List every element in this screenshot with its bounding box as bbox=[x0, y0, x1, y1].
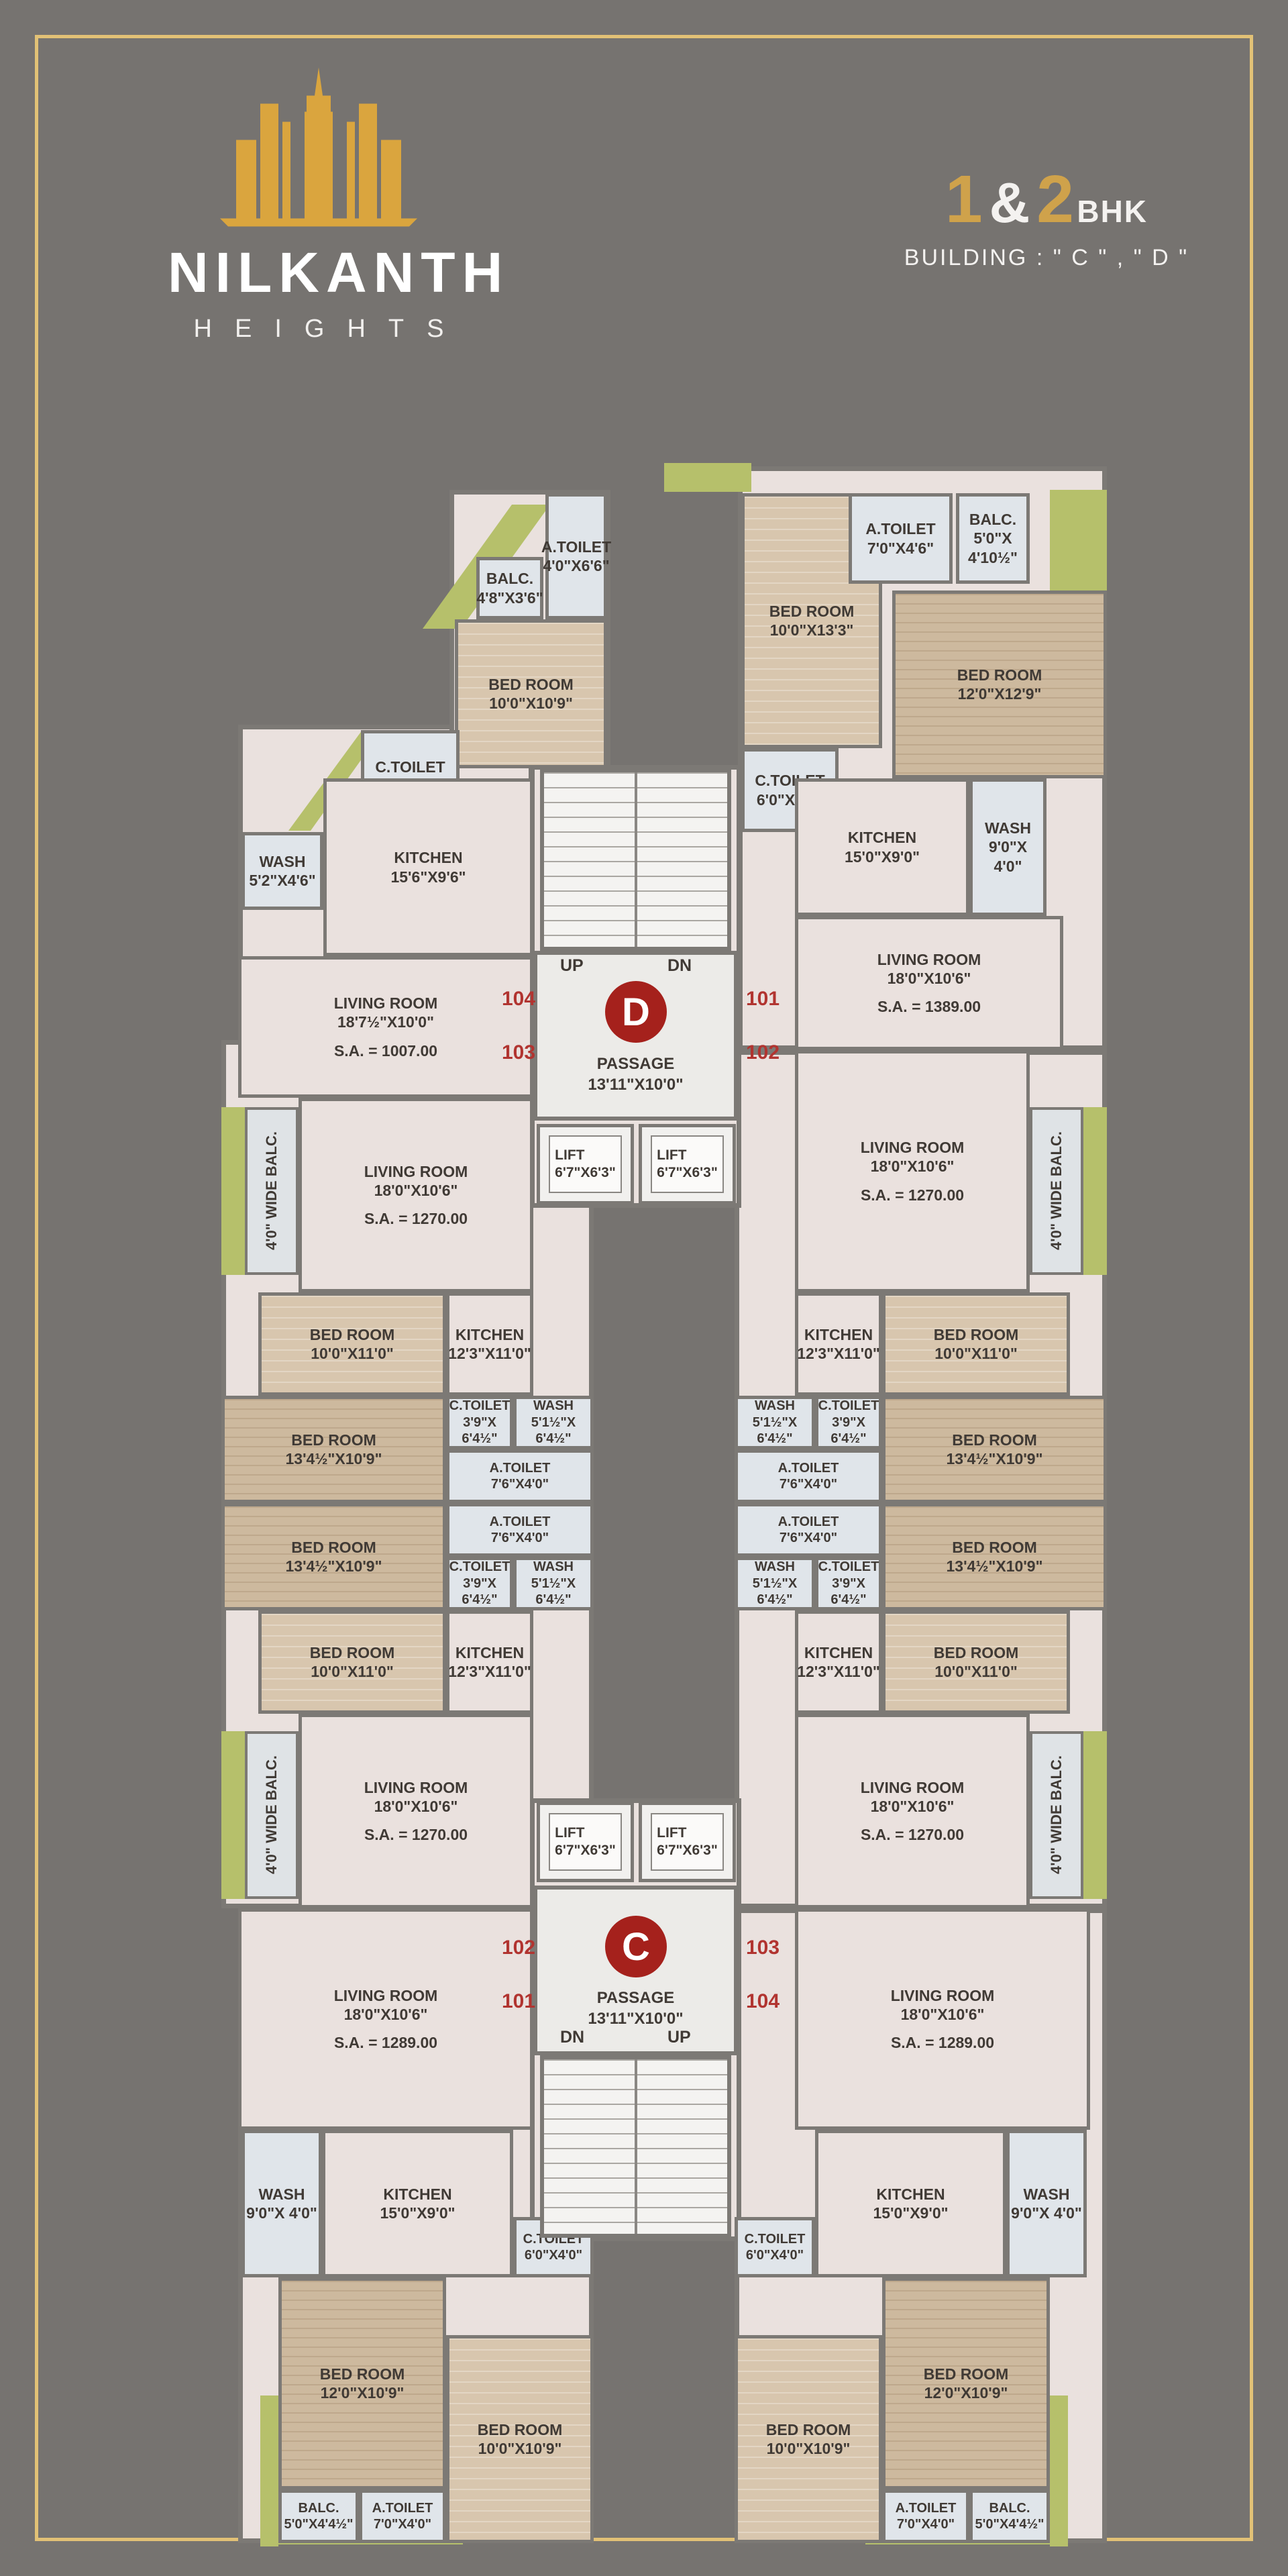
passage-label: PASSAGE13'11"X10'0" bbox=[533, 1988, 738, 2029]
room-a-toilet: A.TOILET7'0"X4'6" bbox=[849, 493, 953, 584]
unit-number: 102 bbox=[502, 1937, 535, 1959]
staircase-c bbox=[540, 2055, 731, 2238]
room-c-toilet: C.TOILET6'0"X4'0" bbox=[735, 2217, 815, 2277]
lift: LIFT6'7"X6'3" bbox=[537, 1802, 634, 1882]
room-bedroom: BED ROOM13'4½"X10'9" bbox=[221, 1396, 446, 1503]
room-balcony: BALC.5'0"X 4'10½" bbox=[956, 493, 1030, 584]
room-wash: WASH5'1½"X 6'4½" bbox=[513, 1557, 594, 1610]
room-bedroom: BED ROOM10'0"X11'0" bbox=[882, 1292, 1070, 1396]
room-living: LIVING ROOM18'0"X10'6"S.A. = 1289.00 bbox=[795, 1908, 1090, 2130]
room-living: LIVING ROOM18'0"X10'6"S.A. = 1289.00 bbox=[238, 1908, 533, 2130]
floor-plan-poster: { "page": {"bg": "#767370", "frame": "#e… bbox=[0, 0, 1288, 2576]
room-wash: WASH5'1½"X 6'4½" bbox=[735, 1396, 815, 1449]
room-wash: WASH9'0"X 4'0" bbox=[969, 778, 1046, 916]
room-kitchen: KITCHEN15'0"X9'0" bbox=[322, 2130, 513, 2277]
room-bedroom: BED ROOM13'4½"X10'9" bbox=[882, 1503, 1107, 1610]
wide-balcony-strip: 4'0" WIDE BALC. bbox=[1030, 1107, 1083, 1275]
green-strip-bottom-right-v bbox=[1050, 2395, 1068, 2546]
room-kitchen: KITCHEN12'3"X11'0" bbox=[446, 1610, 533, 1714]
room-balcony: BALC.5'0"X4'4½" bbox=[969, 2489, 1050, 2543]
room-kitchen: KITCHEN15'0"X9'0" bbox=[795, 778, 969, 916]
building-skyline-icon bbox=[218, 67, 419, 235]
room-a-toilet: A.TOILET7'0"X4'0" bbox=[359, 2489, 446, 2543]
bhk-number-1: 1 bbox=[945, 162, 983, 237]
building-badge-c: C bbox=[605, 1916, 667, 1977]
bhk-number-2: 2 bbox=[1036, 162, 1074, 237]
room-living: LIVING ROOM18'0"X10'6"S.A. = 1389.00 bbox=[795, 916, 1063, 1050]
balcony-green-edge bbox=[1083, 1107, 1107, 1275]
room-bedroom: BED ROOM12'0"X10'9" bbox=[882, 2277, 1050, 2489]
stairs-up-label: UP bbox=[560, 956, 584, 976]
passage-label: PASSAGE13'11"X10'0" bbox=[533, 1053, 738, 1095]
room-living: LIVING ROOM18'0"X10'6"S.A. = 1270.00 bbox=[299, 1714, 533, 1908]
room-living: LIVING ROOM18'0"X10'6"S.A. = 1270.00 bbox=[795, 1050, 1030, 1292]
brand-tagline: HEIGHTS bbox=[168, 315, 470, 344]
bhk-label: BHK bbox=[1077, 194, 1148, 229]
building-subtitle: BUILDING : " C " , " D " bbox=[872, 245, 1221, 271]
lift: LIFT6'7"X6'3" bbox=[639, 1802, 736, 1882]
wide-balcony-strip: 4'0" WIDE BALC. bbox=[1030, 1731, 1083, 1899]
room-wash: WASH5'1½"X 6'4½" bbox=[513, 1396, 594, 1449]
room-a-toilet: A.TOILET7'6"X4'0" bbox=[735, 1449, 882, 1503]
room-a-toilet: A.TOILET7'6"X4'0" bbox=[446, 1503, 594, 1557]
room-a-toilet: A.TOILET7'0"X4'0" bbox=[882, 2489, 969, 2543]
unit-number: 104 bbox=[746, 1990, 780, 2013]
room-bedroom: BED ROOM10'0"X11'0" bbox=[258, 1292, 446, 1396]
room-a-toilet: A.TOILET4'0"X6'6" bbox=[545, 493, 607, 619]
stairs-dn-label: DN bbox=[560, 2028, 584, 2047]
room-living: LIVING ROOM18'0"X10'6"S.A. = 1270.00 bbox=[795, 1714, 1030, 1908]
room-bedroom: BED ROOM10'0"X10'9" bbox=[735, 2335, 882, 2543]
room-wash: WASH5'1½"X 6'4½" bbox=[735, 1557, 815, 1610]
staircase-d bbox=[540, 768, 731, 951]
unit-number: 103 bbox=[746, 1937, 780, 1959]
room-c-toilet: C.TOILET3'9"X 6'4½" bbox=[446, 1396, 513, 1449]
unit-number: 104 bbox=[502, 988, 535, 1011]
unit-number: 101 bbox=[746, 988, 780, 1011]
room-wash: WASH9'0"X 4'0" bbox=[1006, 2130, 1087, 2277]
balcony-green-edge bbox=[221, 1107, 245, 1275]
room-c-toilet: C.TOILET3'9"X 6'4½" bbox=[815, 1396, 882, 1449]
brand-logo: NILKANTH HEIGHTS bbox=[168, 67, 470, 344]
room-bedroom: BED ROOM12'0"X12'9" bbox=[892, 590, 1107, 778]
ampersand: & bbox=[983, 171, 1037, 234]
stairs-dn-label: DN bbox=[667, 956, 692, 976]
room-living: LIVING ROOM18'7½"X10'0"S.A. = 1007.00 bbox=[238, 956, 533, 1098]
room-c-toilet: C.TOILET3'9"X 6'4½" bbox=[446, 1557, 513, 1610]
unit-number: 102 bbox=[746, 1041, 780, 1064]
room-bedroom: BED ROOM13'4½"X10'9" bbox=[221, 1503, 446, 1610]
room-a-toilet: A.TOILET7'6"X4'0" bbox=[446, 1449, 594, 1503]
building-badge-d: D bbox=[605, 981, 667, 1043]
brand-name: NILKANTH bbox=[168, 240, 470, 305]
room-kitchen: KITCHEN12'3"X11'0" bbox=[446, 1292, 533, 1396]
green-strip-bottom-left-v bbox=[260, 2395, 278, 2546]
room-wash: WASH9'0"X 4'0" bbox=[241, 2130, 322, 2277]
room-kitchen: KITCHEN12'3"X11'0" bbox=[795, 1610, 882, 1714]
lift: LIFT6'7"X6'3" bbox=[639, 1124, 736, 1204]
balcony-green-edge bbox=[221, 1731, 245, 1899]
room-bedroom: BED ROOM10'0"X10'9" bbox=[446, 2335, 594, 2543]
room-bedroom: BED ROOM10'0"X10'9" bbox=[455, 619, 607, 768]
floor-plan: A.TOILET4'0"X6'6" BALC.4'8"X3'6" BED ROO… bbox=[221, 463, 1107, 2543]
lift: LIFT6'7"X6'3" bbox=[537, 1124, 634, 1204]
room-bedroom: BED ROOM10'0"X11'0" bbox=[258, 1610, 446, 1714]
room-bedroom: BED ROOM13'4½"X10'9" bbox=[882, 1396, 1107, 1503]
room-c-toilet: C.TOILET3'9"X 6'4½" bbox=[815, 1557, 882, 1610]
green-strip-top-middle bbox=[664, 463, 751, 492]
plan-title: 1&2 BHK BUILDING : " C " , " D " bbox=[872, 161, 1221, 271]
room-living: LIVING ROOM18'0"X10'6"S.A. = 1270.00 bbox=[299, 1098, 533, 1292]
stairs-up-label: UP bbox=[667, 2028, 691, 2047]
room-bedroom: BED ROOM10'0"X11'0" bbox=[882, 1610, 1070, 1714]
wide-balcony-strip: 4'0" WIDE BALC. bbox=[245, 1731, 299, 1899]
room-balcony: BALC.4'8"X3'6" bbox=[476, 557, 543, 619]
room-kitchen: KITCHEN15'0"X9'0" bbox=[815, 2130, 1006, 2277]
wide-balcony-strip: 4'0" WIDE BALC. bbox=[245, 1107, 299, 1275]
room-kitchen: KITCHEN12'3"X11'0" bbox=[795, 1292, 882, 1396]
room-wash: WASH5'2"X4'6" bbox=[241, 832, 323, 910]
room-a-toilet: A.TOILET7'6"X4'0" bbox=[735, 1503, 882, 1557]
balcony-green-edge bbox=[1083, 1731, 1107, 1899]
room-balcony: BALC.5'0"X4'4½" bbox=[278, 2489, 359, 2543]
unit-number: 101 bbox=[502, 1990, 535, 2013]
room-bedroom: BED ROOM12'0"X10'9" bbox=[278, 2277, 446, 2489]
room-kitchen: KITCHEN15'6"X9'6" bbox=[323, 778, 533, 956]
unit-number: 103 bbox=[502, 1041, 535, 1064]
bhk-title: 1&2 BHK bbox=[872, 161, 1221, 238]
